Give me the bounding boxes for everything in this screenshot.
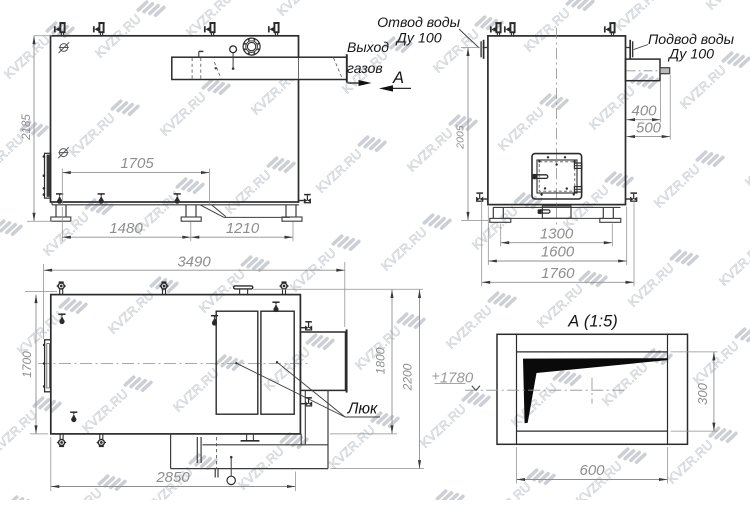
svg-text:А: А bbox=[392, 69, 404, 87]
svg-text:1600: 1600 bbox=[541, 244, 575, 261]
svg-text:+: + bbox=[432, 368, 440, 384]
svg-text:400: 400 bbox=[631, 103, 657, 120]
svg-text:600: 600 bbox=[579, 462, 605, 479]
svg-text:Выход: Выход bbox=[347, 39, 389, 55]
svg-text:2200: 2200 bbox=[401, 363, 415, 391]
svg-text:Ду 100: Ду 100 bbox=[667, 47, 714, 63]
svg-text:1300: 1300 bbox=[540, 226, 574, 243]
svg-text:1210: 1210 bbox=[226, 220, 260, 237]
svg-text:2005: 2005 bbox=[455, 125, 467, 150]
svg-text:Ду 100: Ду 100 bbox=[395, 31, 442, 47]
svg-text:2185: 2185 bbox=[21, 114, 33, 141]
svg-text:газов: газов bbox=[347, 60, 383, 76]
svg-text:300: 300 bbox=[695, 382, 710, 404]
svg-text:1700: 1700 bbox=[20, 351, 34, 378]
svg-text:2850: 2850 bbox=[155, 469, 190, 486]
svg-text:1480: 1480 bbox=[109, 220, 143, 237]
svg-text:500: 500 bbox=[636, 120, 662, 137]
svg-text:1760: 1760 bbox=[541, 265, 575, 282]
svg-text:3490: 3490 bbox=[177, 254, 211, 271]
svg-text:А (1:5): А (1:5) bbox=[567, 313, 618, 331]
svg-text:1705: 1705 bbox=[120, 155, 154, 172]
svg-text:Отвод воды: Отвод воды bbox=[377, 15, 460, 31]
svg-text:Люк: Люк bbox=[347, 401, 378, 418]
svg-text:1800: 1800 bbox=[374, 347, 388, 374]
